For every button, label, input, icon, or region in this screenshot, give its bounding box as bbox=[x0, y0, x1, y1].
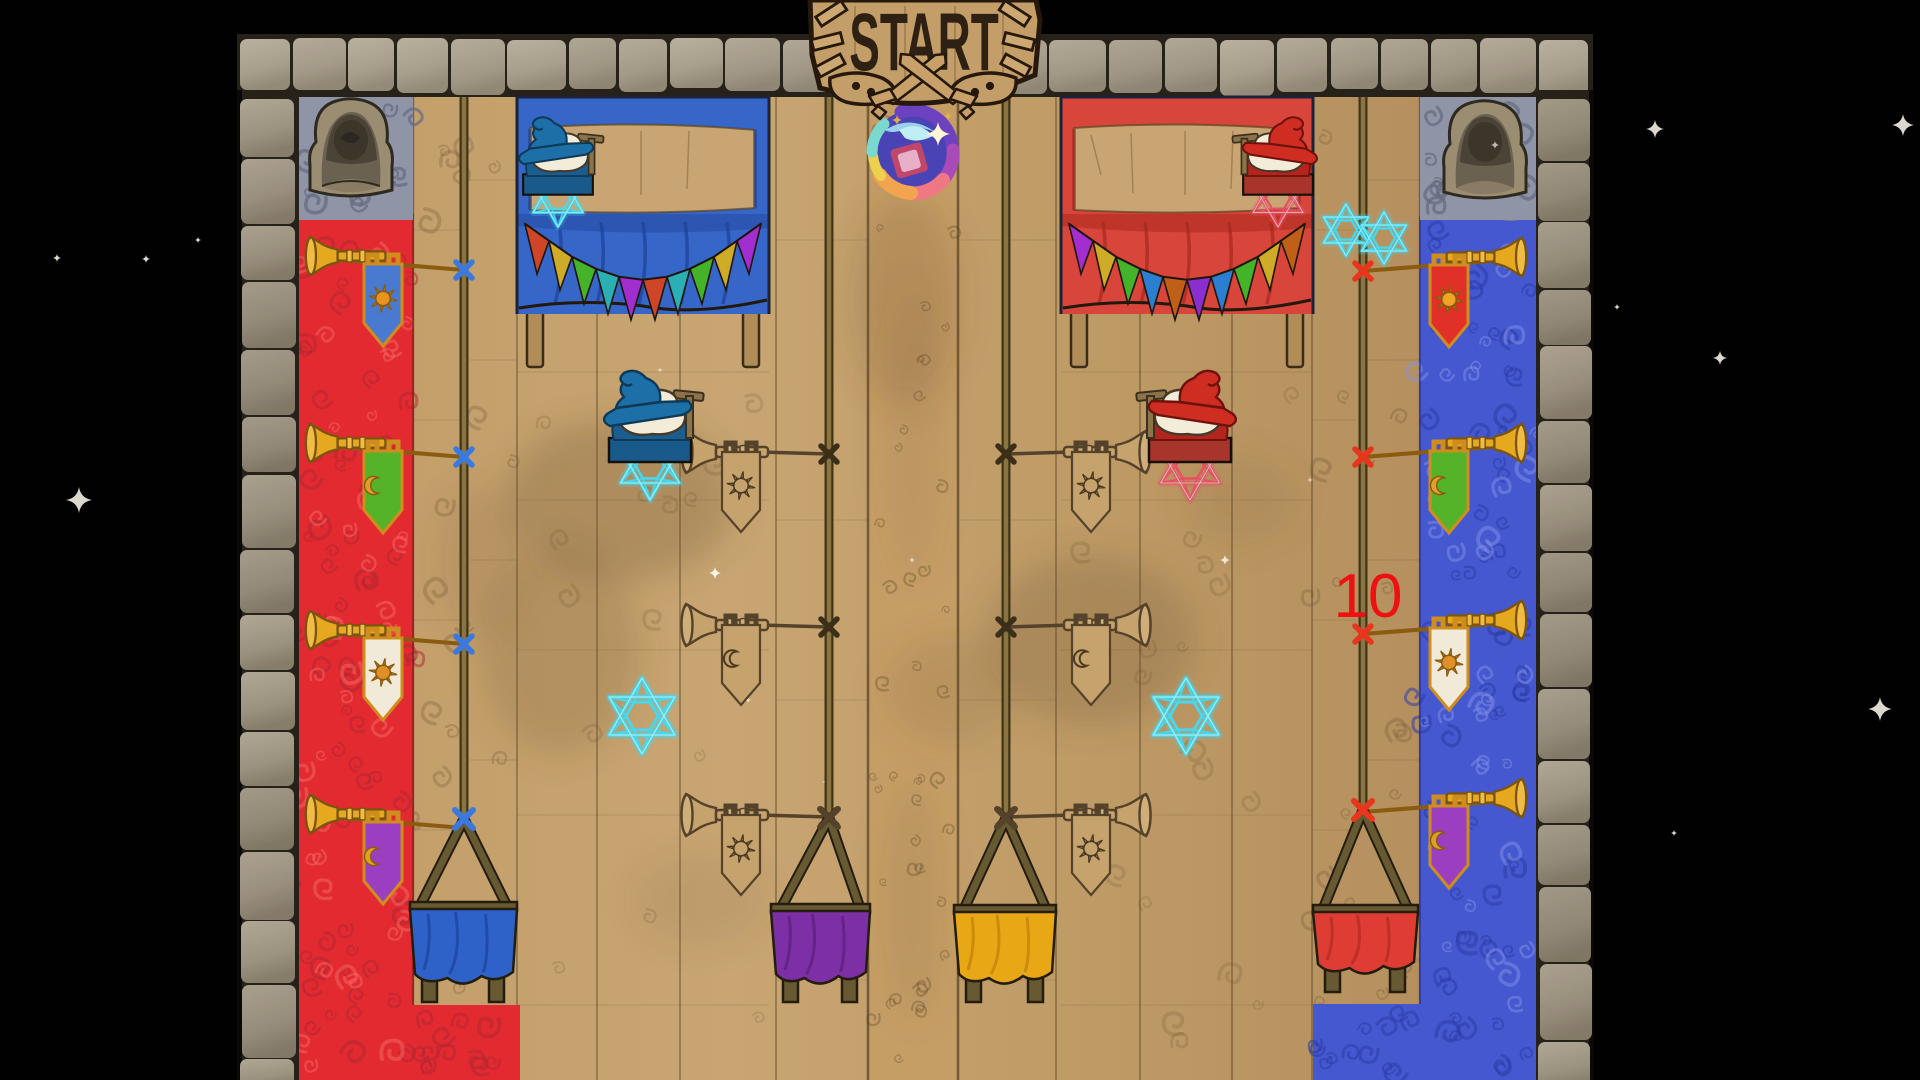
svg-text:10: 10 bbox=[1334, 562, 1403, 631]
